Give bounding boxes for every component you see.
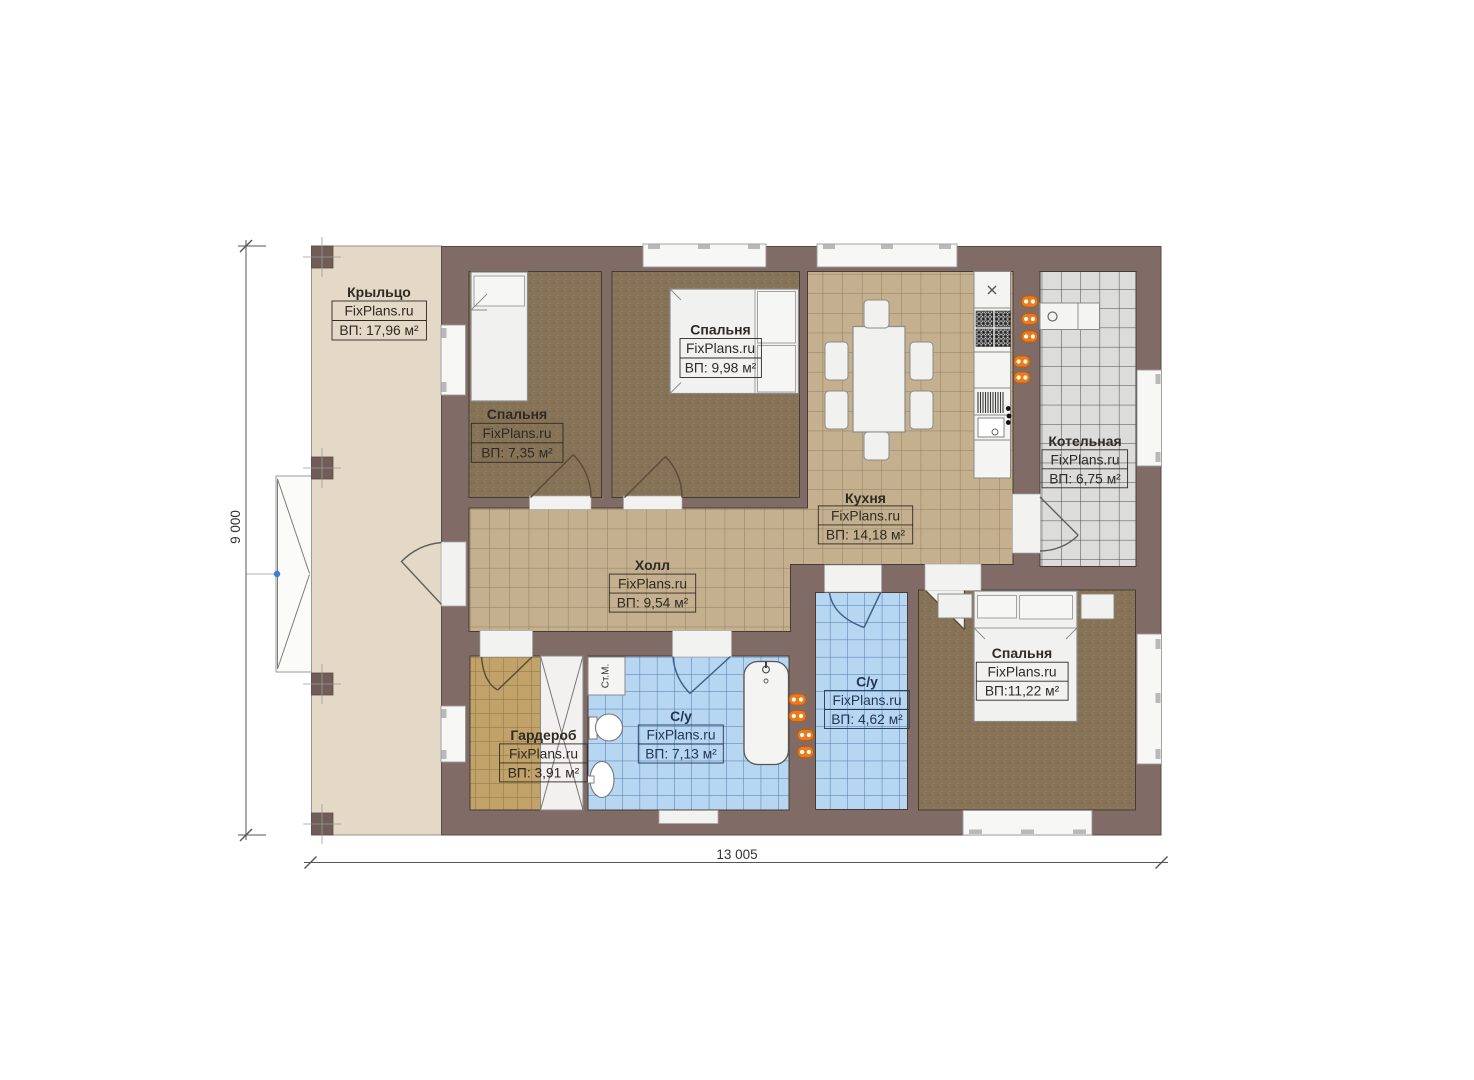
svg-text:FixPlans.ru: FixPlans.ru [987, 665, 1056, 680]
svg-text:13 005: 13 005 [716, 847, 757, 862]
svg-text:ВП: 17,96 м²: ВП: 17,96 м² [339, 323, 419, 338]
svg-text:Спальня: Спальня [690, 322, 750, 338]
svg-text:Крыльцо: Крыльцо [347, 284, 411, 300]
svg-text:ВП: 9,98 м²: ВП: 9,98 м² [685, 361, 757, 376]
svg-text:С/у: С/у [856, 674, 878, 690]
svg-text:С/у: С/у [670, 708, 692, 724]
svg-text:FixPlans.ru: FixPlans.ru [686, 341, 755, 356]
svg-text:ВП: 6,75 м²: ВП: 6,75 м² [1049, 471, 1121, 486]
svg-text:ВП: 14,18 м²: ВП: 14,18 м² [826, 527, 906, 542]
svg-text:ВП: 3,91 м²: ВП: 3,91 м² [508, 765, 580, 780]
svg-text:ВП: 9,54 м²: ВП: 9,54 м² [617, 596, 689, 611]
svg-text:Ст.М.: Ст.М. [601, 664, 612, 689]
svg-text:Холл: Холл [635, 557, 670, 573]
svg-text:FixPlans.ru: FixPlans.ru [344, 304, 413, 319]
svg-text:ВП: 4,62 м²: ВП: 4,62 м² [831, 712, 903, 727]
svg-text:FixPlans.ru: FixPlans.ru [832, 693, 901, 708]
svg-text:FixPlans.ru: FixPlans.ru [646, 728, 715, 743]
svg-text:ВП: 7,13 м²: ВП: 7,13 м² [645, 747, 717, 762]
svg-text:Спальня: Спальня [487, 406, 547, 422]
svg-text:FixPlans.ru: FixPlans.ru [482, 426, 551, 441]
svg-text:FixPlans.ru: FixPlans.ru [1050, 452, 1119, 467]
svg-text:FixPlans.ru: FixPlans.ru [618, 577, 687, 592]
svg-text:Кухня: Кухня [845, 490, 886, 506]
svg-text:Спальня: Спальня [992, 645, 1052, 661]
svg-text:Гардероб: Гардероб [510, 727, 577, 743]
svg-text:ВП:11,22 м²: ВП:11,22 м² [985, 684, 1060, 699]
svg-text:FixPlans.ru: FixPlans.ru [509, 746, 578, 761]
svg-text:FixPlans.ru: FixPlans.ru [831, 508, 900, 523]
svg-text:9 000: 9 000 [228, 510, 243, 544]
svg-text:Котельная: Котельная [1048, 433, 1121, 449]
svg-text:ВП: 7,35 м²: ВП: 7,35 м² [481, 445, 553, 460]
